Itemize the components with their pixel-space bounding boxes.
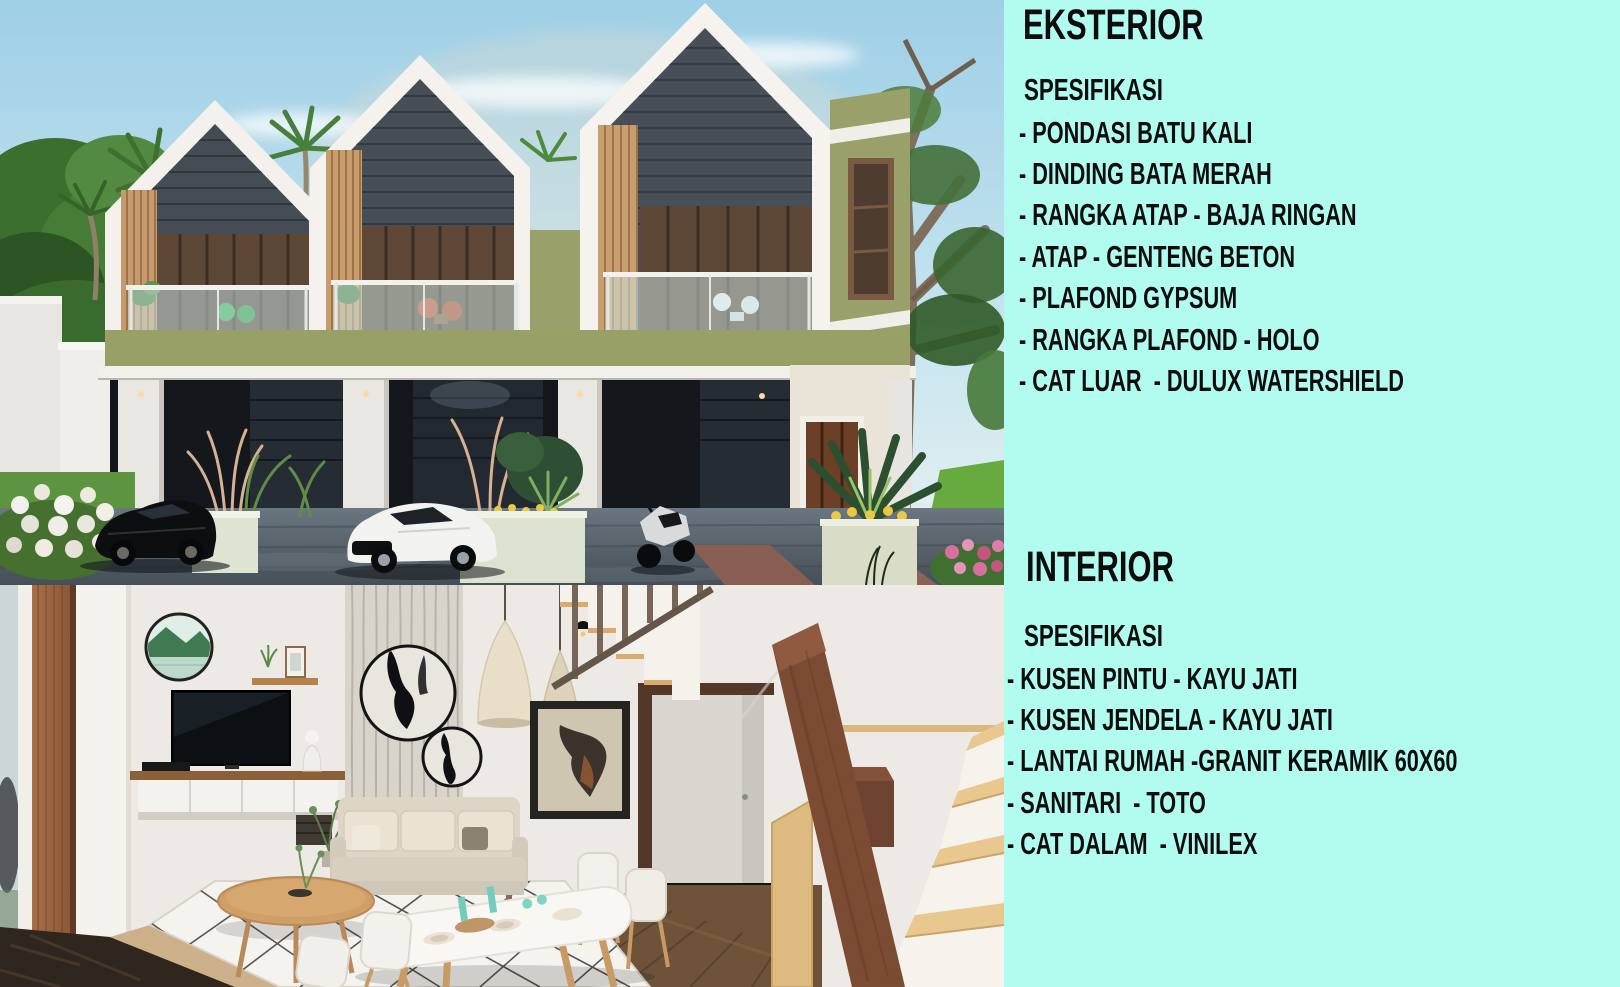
interior-photo (0, 585, 1004, 987)
interior-door (638, 683, 774, 895)
spec-item: - SANITARI - TOTO (1007, 782, 1620, 823)
spec-item-text: - ATAP - GENTENG BETON (1019, 239, 1295, 275)
spec-item: - PONDASI BATU KALI (1019, 112, 1569, 153)
spec-item-text: - KUSEN JENDELA - KAYU JATI (1007, 702, 1333, 738)
spec-item: - PLAFOND GYPSUM (1019, 278, 1569, 319)
spec-item: - CAT LUAR - DULUX WATERSHIELD (1019, 360, 1569, 401)
media-player (142, 762, 190, 772)
framed-art (530, 701, 630, 819)
eksterior-subtitle: SPESIFIKASI (1024, 74, 1217, 105)
eksterior-title-text: EKSTERIOR (1023, 4, 1204, 47)
round-mirror (146, 614, 212, 680)
eksterior-title: EKSTERIOR (1023, 4, 1274, 47)
door-frame-trim (18, 585, 32, 987)
glass-railing (333, 285, 519, 332)
exterior-photo (0, 0, 1004, 585)
interior-subtitle-text: SPESIFIKASI (1024, 620, 1163, 651)
spec-item-text: - SANITARI - TOTO (1007, 785, 1206, 821)
olive-band (105, 330, 910, 368)
spec-item: - ATAP - GENTENG BETON (1019, 236, 1569, 277)
corner-wall (76, 585, 130, 987)
spec-item: - RANGKA PLAFOND - HOLO (1019, 319, 1569, 360)
olive-facade (830, 88, 910, 360)
spec-item: - CAT DALAM - VINILEX (1007, 824, 1620, 865)
glass-railing (605, 277, 812, 332)
spec-item: - KUSEN PINTU - KAYU JATI (1007, 658, 1620, 699)
spec-item: - RANGKA ATAP - BAJA RINGAN (1019, 195, 1569, 236)
interior-spec-list: - KUSEN PINTU - KAYU JATI - KUSEN JENDEL… (1007, 658, 1620, 865)
floor-trim (843, 725, 1004, 732)
spec-item-text: - KUSEN PINTU - KAYU JATI (1007, 661, 1298, 697)
ring-art-large (361, 646, 455, 740)
stair-stringer (772, 800, 812, 987)
door-frame (32, 585, 76, 987)
spec-item-text: - PLAFOND GYPSUM (1019, 280, 1237, 316)
spec-item-text: - RANGKA PLAFOND - HOLO (1019, 322, 1320, 358)
spec-item-text: - CAT DALAM - VINILEX (1007, 826, 1257, 862)
photos-column (0, 0, 1004, 987)
ring-art-small (423, 728, 481, 786)
spec-item-text: - RANGKA ATAP - BAJA RINGAN (1019, 197, 1357, 233)
spec-item: - KUSEN JENDELA - KAYU JATI (1007, 699, 1620, 740)
eksterior-spec-list: - PONDASI BATU KALI - DINDING BATA MERAH… (1019, 112, 1569, 402)
interior-title: INTERIOR (1026, 546, 1231, 589)
spec-item: - LANTAI RUMAH -GRANIT KERAMIK 60X60 (1007, 741, 1620, 782)
spec-item-text: - DINDING BATA MERAH (1019, 156, 1272, 192)
spec-item: - DINDING BATA MERAH (1019, 153, 1569, 194)
interior-subtitle: SPESIFIKASI (1024, 620, 1217, 651)
column (343, 380, 389, 520)
spec-item-text: - LANTAI RUMAH -GRANIT KERAMIK 60X60 (1007, 743, 1457, 779)
side-table (296, 815, 332, 845)
flyer-root: EKSTERIOR SPESIFIKASI - PONDASI BATU KAL… (0, 0, 1620, 987)
interior-title-text: INTERIOR (1026, 546, 1174, 589)
spec-panel: EKSTERIOR SPESIFIKASI - PONDASI BATU KAL… (1004, 0, 1620, 987)
spec-item-text: - CAT LUAR - DULUX WATERSHIELD (1019, 363, 1404, 399)
eksterior-subtitle-text: SPESIFIKASI (1024, 74, 1163, 105)
tv (172, 691, 290, 769)
spec-item-text: - PONDASI BATU KALI (1019, 115, 1252, 151)
glass-door (0, 585, 20, 987)
